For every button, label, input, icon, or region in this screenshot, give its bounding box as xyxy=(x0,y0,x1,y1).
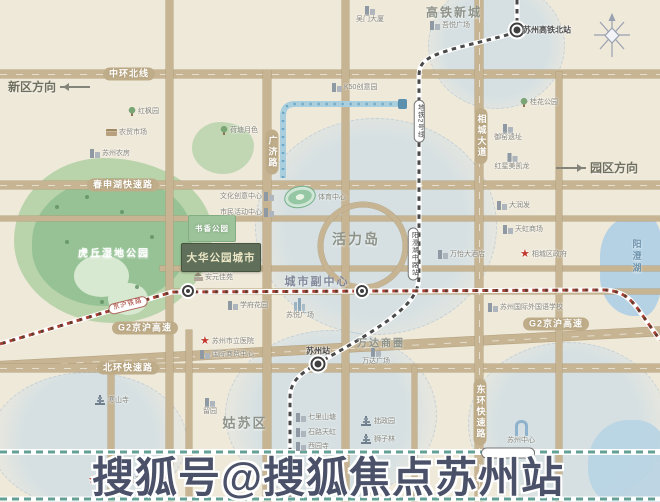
road-label-G2京沪高速: G2京沪高速 xyxy=(112,322,178,335)
building-icon xyxy=(200,350,210,359)
towers-icon xyxy=(294,298,307,311)
pagoda-icon xyxy=(94,395,106,405)
poi-苏州国际外国语学校: 苏州国际外国语学校 xyxy=(488,303,563,312)
building-icon xyxy=(332,83,342,92)
pagoda-icon xyxy=(360,434,372,444)
poi-label: 吾悦广场 xyxy=(442,22,470,29)
poi-label: 桂花公园 xyxy=(530,99,558,106)
poi-label: 农贸市场 xyxy=(119,129,147,136)
poi-label: 万怡大酒店 xyxy=(450,251,485,258)
poi-御窑遗址: 御窑遗址 xyxy=(494,124,522,141)
poi-label: 吴门大厦 xyxy=(356,16,384,23)
poi-label: 体育中心 xyxy=(318,194,346,201)
building-icon xyxy=(205,398,215,407)
building-icon xyxy=(90,149,100,158)
poi-苏悦广场: 苏悦广场 xyxy=(286,298,314,319)
station-label-苏州高铁北站: 苏州高铁北站 xyxy=(523,25,571,36)
poi-荷塘月色: 荷塘月色 xyxy=(220,126,258,135)
poi-label: 国际商贸中心 xyxy=(212,351,254,358)
area-label-高铁新城: 高铁新城 xyxy=(426,4,482,21)
road-label-G2京沪高速: G2京沪高速 xyxy=(523,318,589,331)
arrow-left-icon xyxy=(60,86,90,88)
building-icon xyxy=(371,348,381,357)
road-label-相城大道: 相城大道 xyxy=(475,108,488,164)
poi-国际商贸中心: 国际商贸中心 xyxy=(200,350,254,359)
poi-label: 大润发 xyxy=(509,202,530,209)
shuxiang-park: 书香公园 xyxy=(188,215,236,242)
station-marker-苏州站 xyxy=(311,357,326,372)
poi-label: 相城区政府 xyxy=(532,251,567,258)
poi-红枫园: 红枫园 xyxy=(128,107,159,116)
poi-label: 七里山塘 xyxy=(308,414,336,421)
poi-label: 安元佳苑 xyxy=(205,274,233,281)
poi-label: 苏州国际外国语学校 xyxy=(500,304,563,311)
area-label-虎丘湿地公园: 虎丘湿地公园 xyxy=(78,245,150,260)
poi-label: 拙政园 xyxy=(374,418,395,425)
poi-label: K50创意园 xyxy=(344,84,377,91)
direction-text: 新区方向 xyxy=(8,78,56,95)
area-label-城市副中心: 城市副中心 xyxy=(285,273,350,289)
area-label-姑苏区: 姑苏区 xyxy=(222,413,267,432)
star-icon: ★ xyxy=(200,336,210,347)
poi-label: 红枫园 xyxy=(138,108,159,115)
building-icon xyxy=(497,201,507,210)
poi-石路天虹: 石路天虹 xyxy=(296,428,336,437)
tree-icon xyxy=(520,98,528,107)
poi-label: 留园 xyxy=(203,408,217,415)
poi-label: 荷塘月色 xyxy=(230,127,258,134)
map-canvas: 书香公园 大华公园城市 搜狐号@搜狐焦点苏州站 中环北线春申湖快速路G2京沪高速… xyxy=(0,0,660,502)
building-icon xyxy=(430,21,440,30)
market-icon xyxy=(106,129,117,136)
poi-体育中心: 体育中心 xyxy=(284,186,346,208)
poi-label: 学府花园 xyxy=(240,302,268,309)
station-marker xyxy=(182,285,194,297)
sohu-watermark: 搜狐号@搜狐焦点苏州站 xyxy=(92,444,564,502)
direction-text: 园区方向 xyxy=(590,159,638,176)
poi-万达广场: 万达广场 xyxy=(362,348,390,365)
poi-拙政园: 拙政园 xyxy=(360,416,395,426)
area-label-活力岛: 活力岛 xyxy=(332,229,380,249)
poi-文化创意中心: 文化创意中心 xyxy=(220,192,274,201)
rail-pill-地铁2号线: 地铁2号线 xyxy=(414,100,425,143)
poi-相城区政府: ★相城区政府 xyxy=(520,249,567,260)
poi-label: 苏州市立医院 xyxy=(212,338,254,345)
building-icon xyxy=(503,225,513,234)
poi-label: 御窑遗址 xyxy=(494,134,522,141)
road-label-北环快速路: 北环快速路 xyxy=(97,362,159,375)
poi-留园: 留园 xyxy=(203,398,217,415)
stadium-icon xyxy=(282,183,318,211)
poi-label: 苏州农房 xyxy=(102,150,130,157)
building-icon xyxy=(438,250,448,259)
poi-学府花园: 学府花园 xyxy=(228,301,268,310)
poi-桂花公园: 桂花公园 xyxy=(520,98,558,107)
building-icon xyxy=(296,413,306,422)
compass-icon xyxy=(590,10,634,60)
building-icon xyxy=(264,208,274,217)
road-label-广济路: 广济路 xyxy=(266,130,279,175)
poi-label: 寒山寺 xyxy=(108,397,129,404)
poi-吾悦广场: 吾悦广场 xyxy=(430,21,470,30)
poi-label: 红星美凯龙 xyxy=(495,163,530,170)
poi-苏州中心: 苏州中心 xyxy=(507,420,535,444)
poi-label: 石路天虹 xyxy=(308,429,336,436)
poi-农贸市场: 农贸市场 xyxy=(106,129,147,136)
road-label-东环快速路: 东环快速路 xyxy=(474,379,487,446)
tree-icon xyxy=(220,126,228,135)
poi-label: 万达广场 xyxy=(362,358,390,365)
gate-icon xyxy=(515,420,528,436)
building-icon xyxy=(507,153,517,162)
shuxiang-park-label: 书香公园 xyxy=(195,223,229,234)
tree-icon xyxy=(128,107,136,116)
metro-line-blue xyxy=(283,99,407,178)
direction-label-新区方向: 新区方向 xyxy=(8,78,90,95)
building-icon xyxy=(503,124,513,133)
road-label-春申湖快速路: 春申湖快速路 xyxy=(87,179,159,192)
building-icon xyxy=(264,192,274,201)
rail-pill-阳澄湖中路站: 阳澄湖中路站 xyxy=(408,228,419,281)
building-icon xyxy=(365,6,375,15)
poi-K50创意园: K50创意园 xyxy=(332,83,377,92)
poi-label: 天虹商场 xyxy=(515,226,543,233)
arrow-right-icon xyxy=(556,167,586,169)
poi-label: 狮子林 xyxy=(374,436,395,443)
poi-天虹商场: 天虹商场 xyxy=(503,225,543,234)
station-label-苏州站: 苏州站 xyxy=(306,346,330,357)
poi-寒山寺: 寒山寺 xyxy=(94,395,129,405)
poi-吴门大厦: 吴门大厦 xyxy=(356,6,384,23)
pagoda-icon xyxy=(360,416,372,426)
poi-狮子林: 狮子林 xyxy=(360,434,395,444)
poi-苏州市立医院: ★苏州市立医院 xyxy=(200,336,254,347)
area-label-阳澄湖: 阳澄湖 xyxy=(631,239,644,275)
direction-label-园区方向: 园区方向 xyxy=(556,159,638,176)
road-label-中环北线: 中环北线 xyxy=(103,68,155,81)
star-icon: ★ xyxy=(520,249,530,260)
poi-七里山塘: 七里山塘 xyxy=(296,413,336,422)
poi-label: 苏悦广场 xyxy=(286,312,314,319)
poi-安元佳苑: 安元佳苑 xyxy=(194,273,233,281)
poi-label: 文化创意中心 xyxy=(220,193,262,200)
building-icon xyxy=(228,301,238,310)
poi-万怡大酒店: 万怡大酒店 xyxy=(438,250,485,259)
poi-label: 苏州中心 xyxy=(507,437,535,444)
poi-大润发: 大润发 xyxy=(497,201,530,210)
station-marker xyxy=(356,285,368,297)
house-icon xyxy=(194,273,203,281)
project-marker: 大华公园城市 xyxy=(181,243,261,272)
project-name: 大华公园城市 xyxy=(187,250,256,265)
poi-市民活动中心: 市民活动中心 xyxy=(220,208,274,217)
building-icon xyxy=(488,303,498,312)
building-icon xyxy=(296,428,306,437)
poi-红星美凯龙: 红星美凯龙 xyxy=(495,153,530,170)
poi-苏州农房: 苏州农房 xyxy=(90,149,130,158)
poi-label: 市民活动中心 xyxy=(220,209,262,216)
